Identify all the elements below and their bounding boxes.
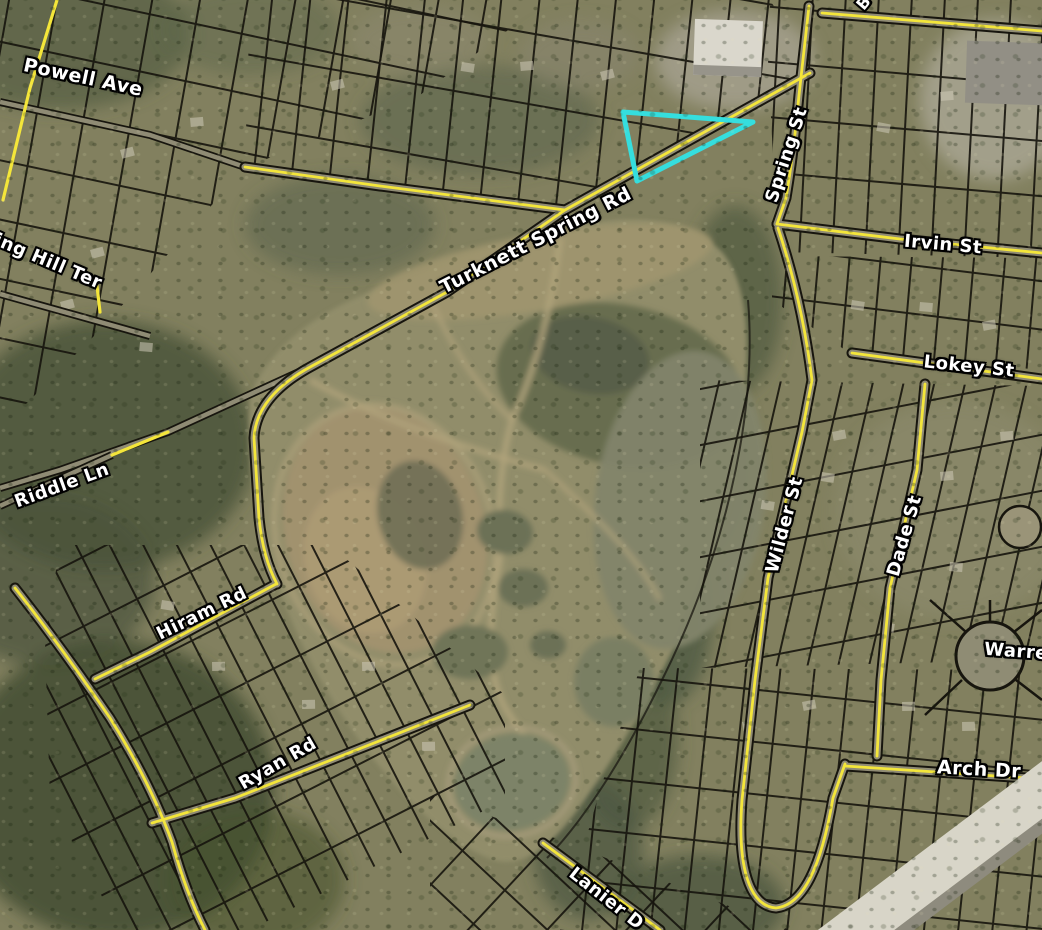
map-viewport[interactable]: Powell Aveing Hill TerRiddle LnHiram RdR… <box>0 0 1042 930</box>
building-roof <box>965 41 1042 106</box>
cul-de-sac <box>999 506 1041 548</box>
aerial-map <box>0 0 1042 930</box>
warren-intersection-hub <box>956 622 1024 690</box>
